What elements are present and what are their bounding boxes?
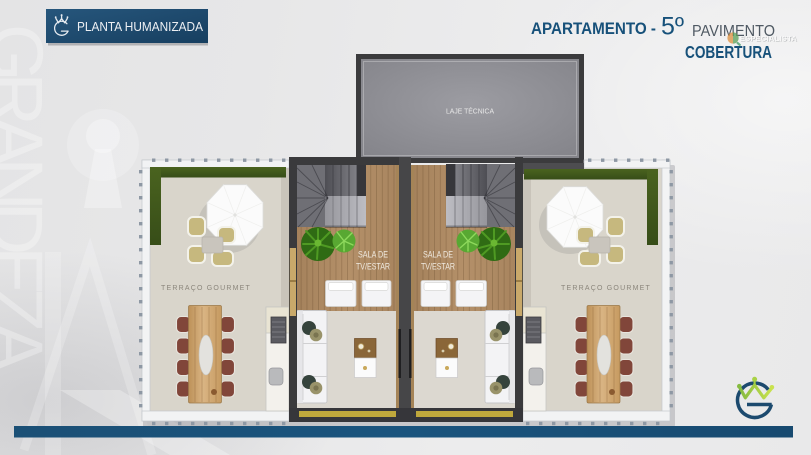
svg-text:PLANTA HUMANIZADA: PLANTA HUMANIZADA [77,19,203,34]
svg-text:LAJE TÉCNICA: LAJE TÉCNICA [446,107,494,116]
svg-text:SALA DE: SALA DE [358,250,388,260]
svg-text:5º: 5º [661,13,684,41]
svg-text:COBERTURA: COBERTURA [685,42,772,62]
svg-text:SALA DE: SALA DE [423,250,453,260]
svg-text:TERRAÇO GOURMET: TERRAÇO GOURMET [161,285,251,292]
svg-text:TV/ESTAR: TV/ESTAR [356,262,390,272]
svg-text:TERRAÇO GOURMET: TERRAÇO GOURMET [561,285,651,292]
svg-text:APARTAMENTO -: APARTAMENTO - [531,20,656,38]
svg-text:TV/ESTAR: TV/ESTAR [421,262,455,272]
